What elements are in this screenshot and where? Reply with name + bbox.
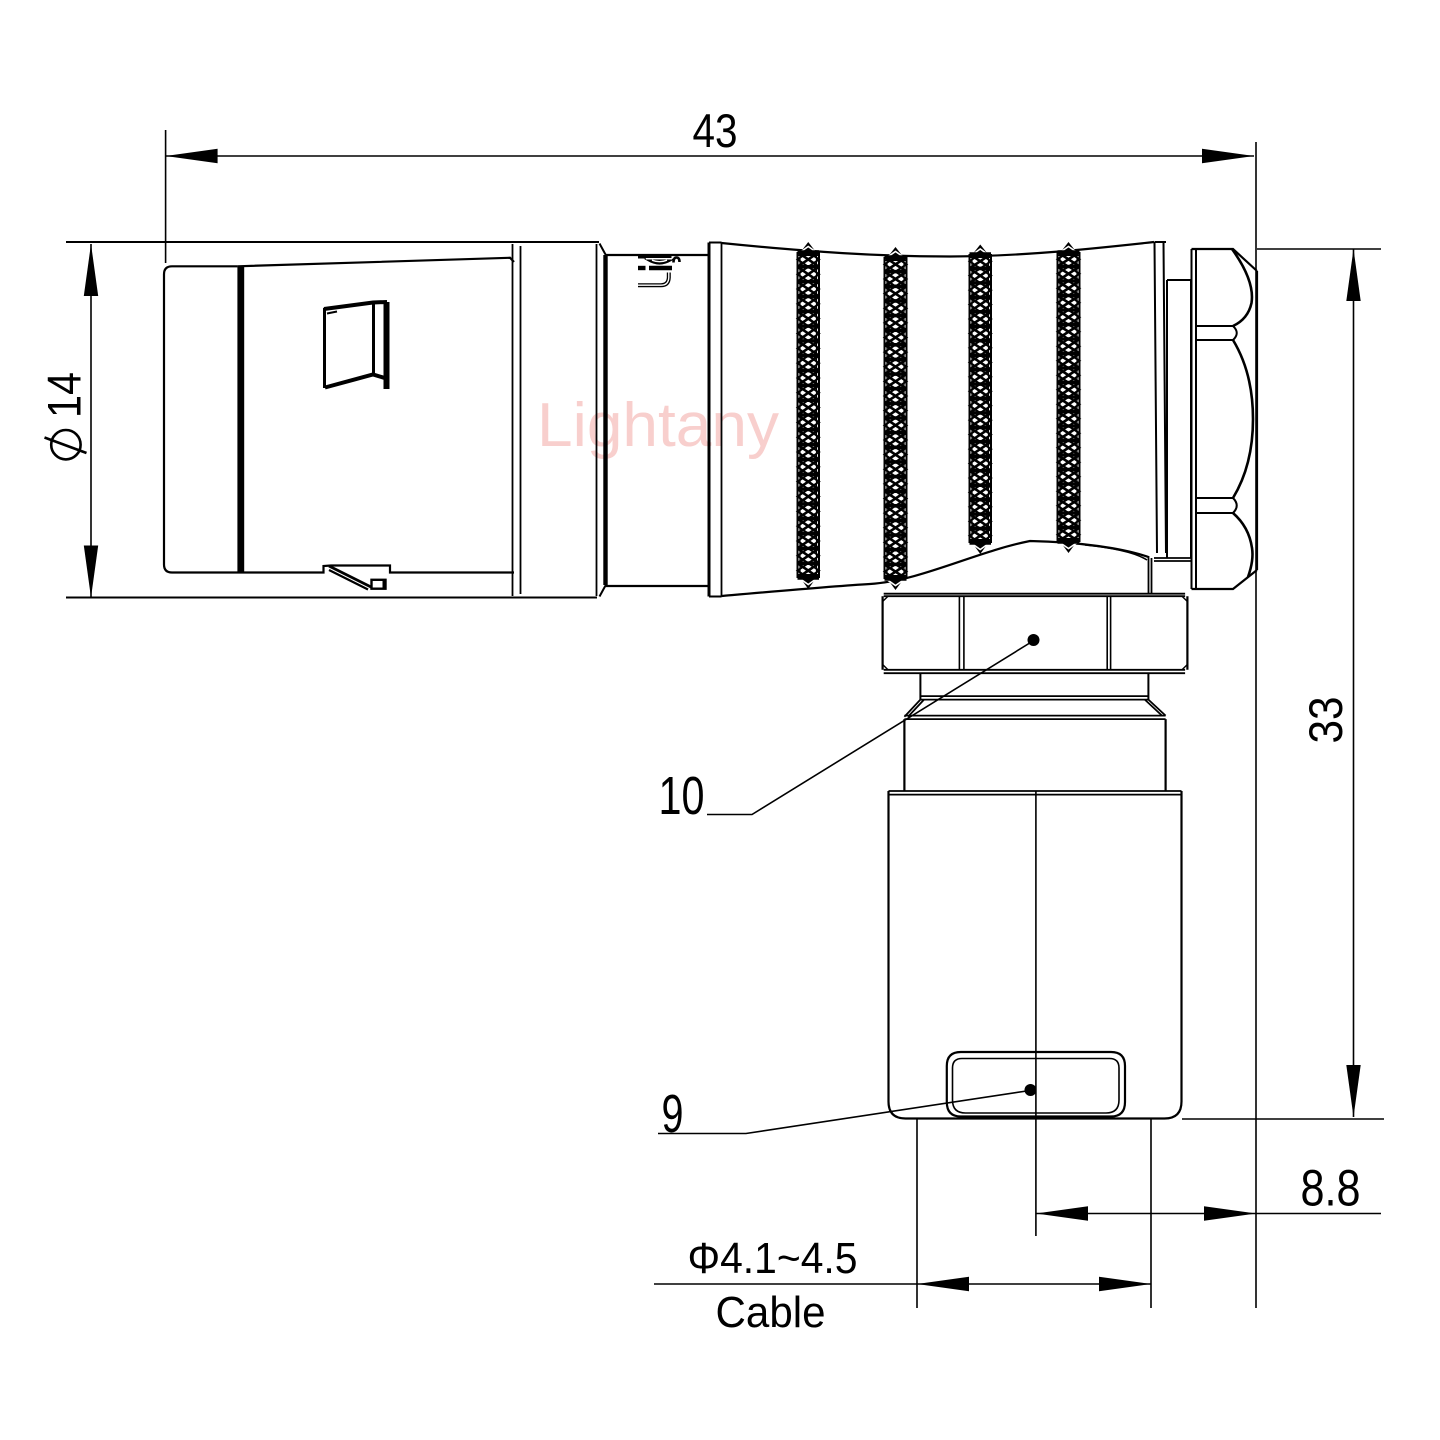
svg-text:10: 10 [659,766,705,826]
svg-text:Lightany: Lightany [537,391,779,460]
svg-text:33: 33 [1299,697,1352,744]
svg-text:8.8: 8.8 [1301,1160,1361,1217]
svg-text:14: 14 [38,372,91,418]
svg-text:9: 9 [662,1084,684,1144]
svg-text:Φ4.1~4.5: Φ4.1~4.5 [688,1234,858,1283]
svg-text:Cable: Cable [716,1288,826,1337]
svg-text:43: 43 [693,104,738,157]
